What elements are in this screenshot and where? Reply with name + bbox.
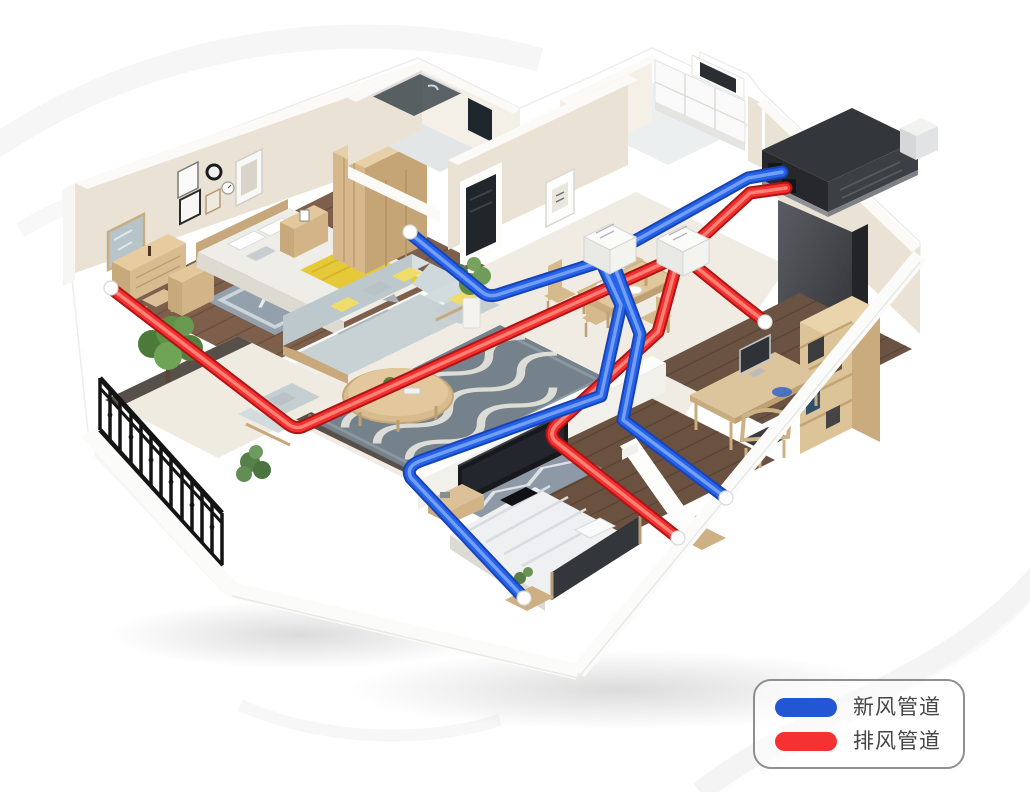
legend-item-fresh: 新风管道 [775, 697, 963, 718]
exhaust-outlet-master [104, 281, 118, 295]
ventilation-cutaway-illustration: 新风管道 排风管道 [0, 0, 1030, 792]
legend-label-exhaust-duct: 排风管道 [853, 731, 941, 752]
bottle [148, 246, 151, 256]
mousepad [772, 387, 792, 397]
fresh-outlet-bedroom2 [517, 591, 531, 605]
legend-item-exhaust: 排风管道 [775, 731, 963, 752]
outer-wall-left [63, 183, 75, 286]
table-tray [404, 388, 420, 394]
legend-swatch-fresh-duct [775, 698, 837, 717]
exhaust-outlet-bedroom2 [671, 531, 685, 545]
legend-swatch-exhaust-duct [775, 732, 837, 751]
fresh-outlet-study [719, 491, 733, 505]
legend-label-fresh-duct: 新风管道 [853, 697, 941, 718]
exhaust-outlet-study [758, 315, 772, 329]
fresh-outlet-hall [403, 225, 417, 239]
photo-frame [300, 210, 309, 221]
legend: 新风管道 排风管道 [753, 679, 965, 769]
